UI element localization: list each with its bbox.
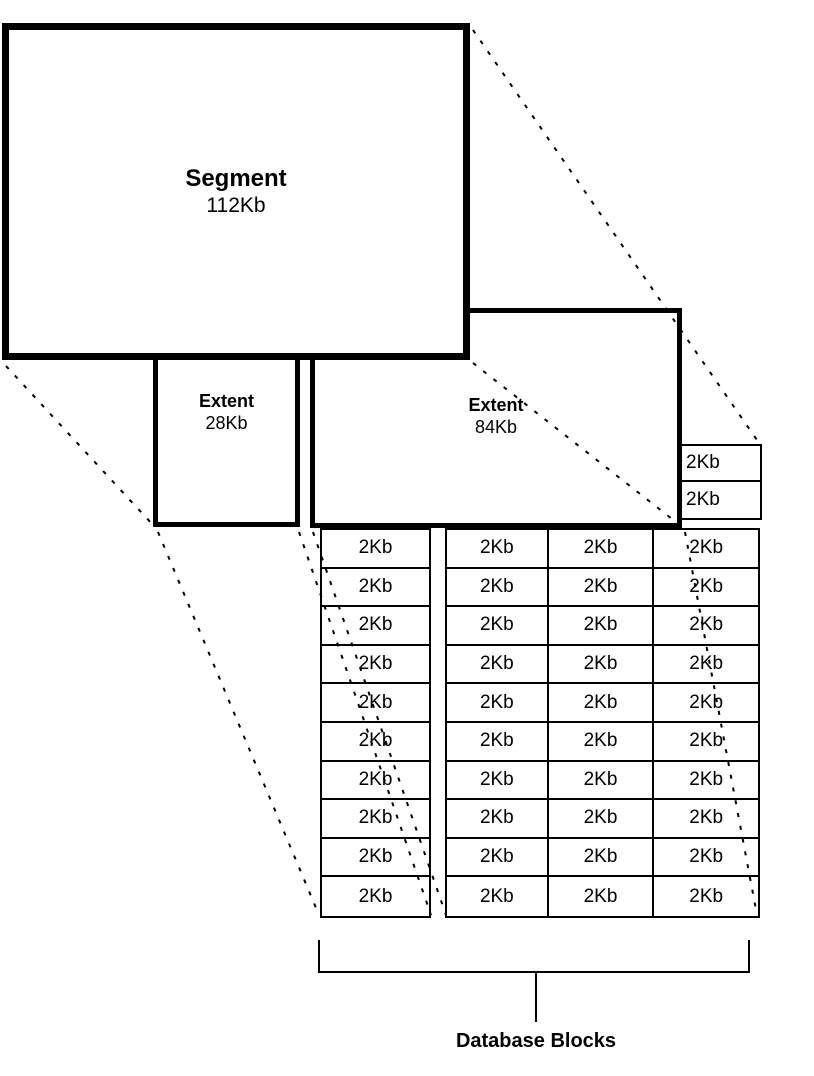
block-cell: 2Kb	[322, 839, 429, 878]
block-cell: 2Kb	[549, 839, 655, 878]
block-cell: 2Kb	[322, 607, 429, 646]
block-cell: 2Kb	[322, 569, 429, 608]
extent-small-label-group: Extent 28Kb	[158, 391, 295, 434]
block-cell: 2Kb	[549, 646, 655, 685]
block-cell: 2Kb	[447, 569, 549, 608]
database-blocks-bracket	[319, 940, 749, 972]
database-blocks-caption: Database Blocks	[320, 1030, 752, 1053]
block-cell: 2Kb	[549, 800, 655, 839]
block-cell: 2Kb	[447, 684, 549, 723]
extent-small-size: 28Kb	[158, 412, 295, 434]
overflow-block-cells: 2Kb2Kb	[682, 444, 762, 520]
block-cell: 2Kb	[682, 444, 762, 482]
block-cell: 2Kb	[322, 877, 429, 916]
storage-diagram: Extent 84Kb Extent 28Kb Segment 112Kb 2K…	[0, 0, 814, 1076]
segment-title: Segment	[185, 165, 286, 193]
block-cell: 2Kb	[654, 762, 758, 801]
block-cell: 2Kb	[654, 607, 758, 646]
block-cell: 2Kb	[549, 607, 655, 646]
segment-box: Segment 112Kb	[2, 23, 470, 360]
dashed-connector-extent-small-left-to-blocks	[158, 532, 319, 915]
segment-size: 112Kb	[206, 193, 265, 219]
block-cell: 2Kb	[447, 839, 549, 878]
block-cell: 2Kb	[549, 530, 655, 569]
block-cell: 2Kb	[549, 569, 655, 608]
extent-large-title: Extent	[315, 395, 677, 416]
block-cell: 2Kb	[549, 877, 655, 916]
block-cell: 2Kb	[549, 684, 655, 723]
extent-small-box: Extent 28Kb	[153, 353, 300, 527]
block-cell: 2Kb	[654, 569, 758, 608]
dashed-connector-segment-to-extent-small	[6, 366, 153, 525]
extent-large-label-group: Extent 84Kb	[315, 395, 677, 438]
block-cell: 2Kb	[654, 684, 758, 723]
block-cell: 2Kb	[549, 762, 655, 801]
block-cell: 2Kb	[322, 530, 429, 569]
block-cell: 2Kb	[447, 607, 549, 646]
block-cell: 2Kb	[322, 684, 429, 723]
left-block-column: 2Kb2Kb2Kb2Kb2Kb2Kb2Kb2Kb2Kb2Kb	[320, 528, 431, 918]
block-cell: 2Kb	[654, 877, 758, 916]
block-cell: 2Kb	[654, 723, 758, 762]
block-cell: 2Kb	[549, 723, 655, 762]
block-cell: 2Kb	[447, 762, 549, 801]
block-cell: 2Kb	[447, 530, 549, 569]
block-cell: 2Kb	[654, 646, 758, 685]
block-cell: 2Kb	[447, 800, 549, 839]
right-block-grid: 2Kb2Kb2Kb2Kb2Kb2Kb2Kb2Kb2Kb2Kb2Kb2Kb2Kb2…	[445, 528, 760, 918]
block-cell: 2Kb	[322, 762, 429, 801]
block-cell: 2Kb	[447, 646, 549, 685]
extent-small-title: Extent	[158, 391, 295, 412]
block-cell: 2Kb	[654, 530, 758, 569]
block-cell: 2Kb	[682, 482, 762, 520]
block-cell: 2Kb	[447, 877, 549, 916]
block-cell: 2Kb	[322, 800, 429, 839]
block-cell: 2Kb	[322, 723, 429, 762]
block-cell: 2Kb	[447, 723, 549, 762]
block-cell: 2Kb	[322, 646, 429, 685]
block-cell: 2Kb	[654, 800, 758, 839]
extent-large-size: 84Kb	[315, 416, 677, 438]
block-cell: 2Kb	[654, 839, 758, 878]
